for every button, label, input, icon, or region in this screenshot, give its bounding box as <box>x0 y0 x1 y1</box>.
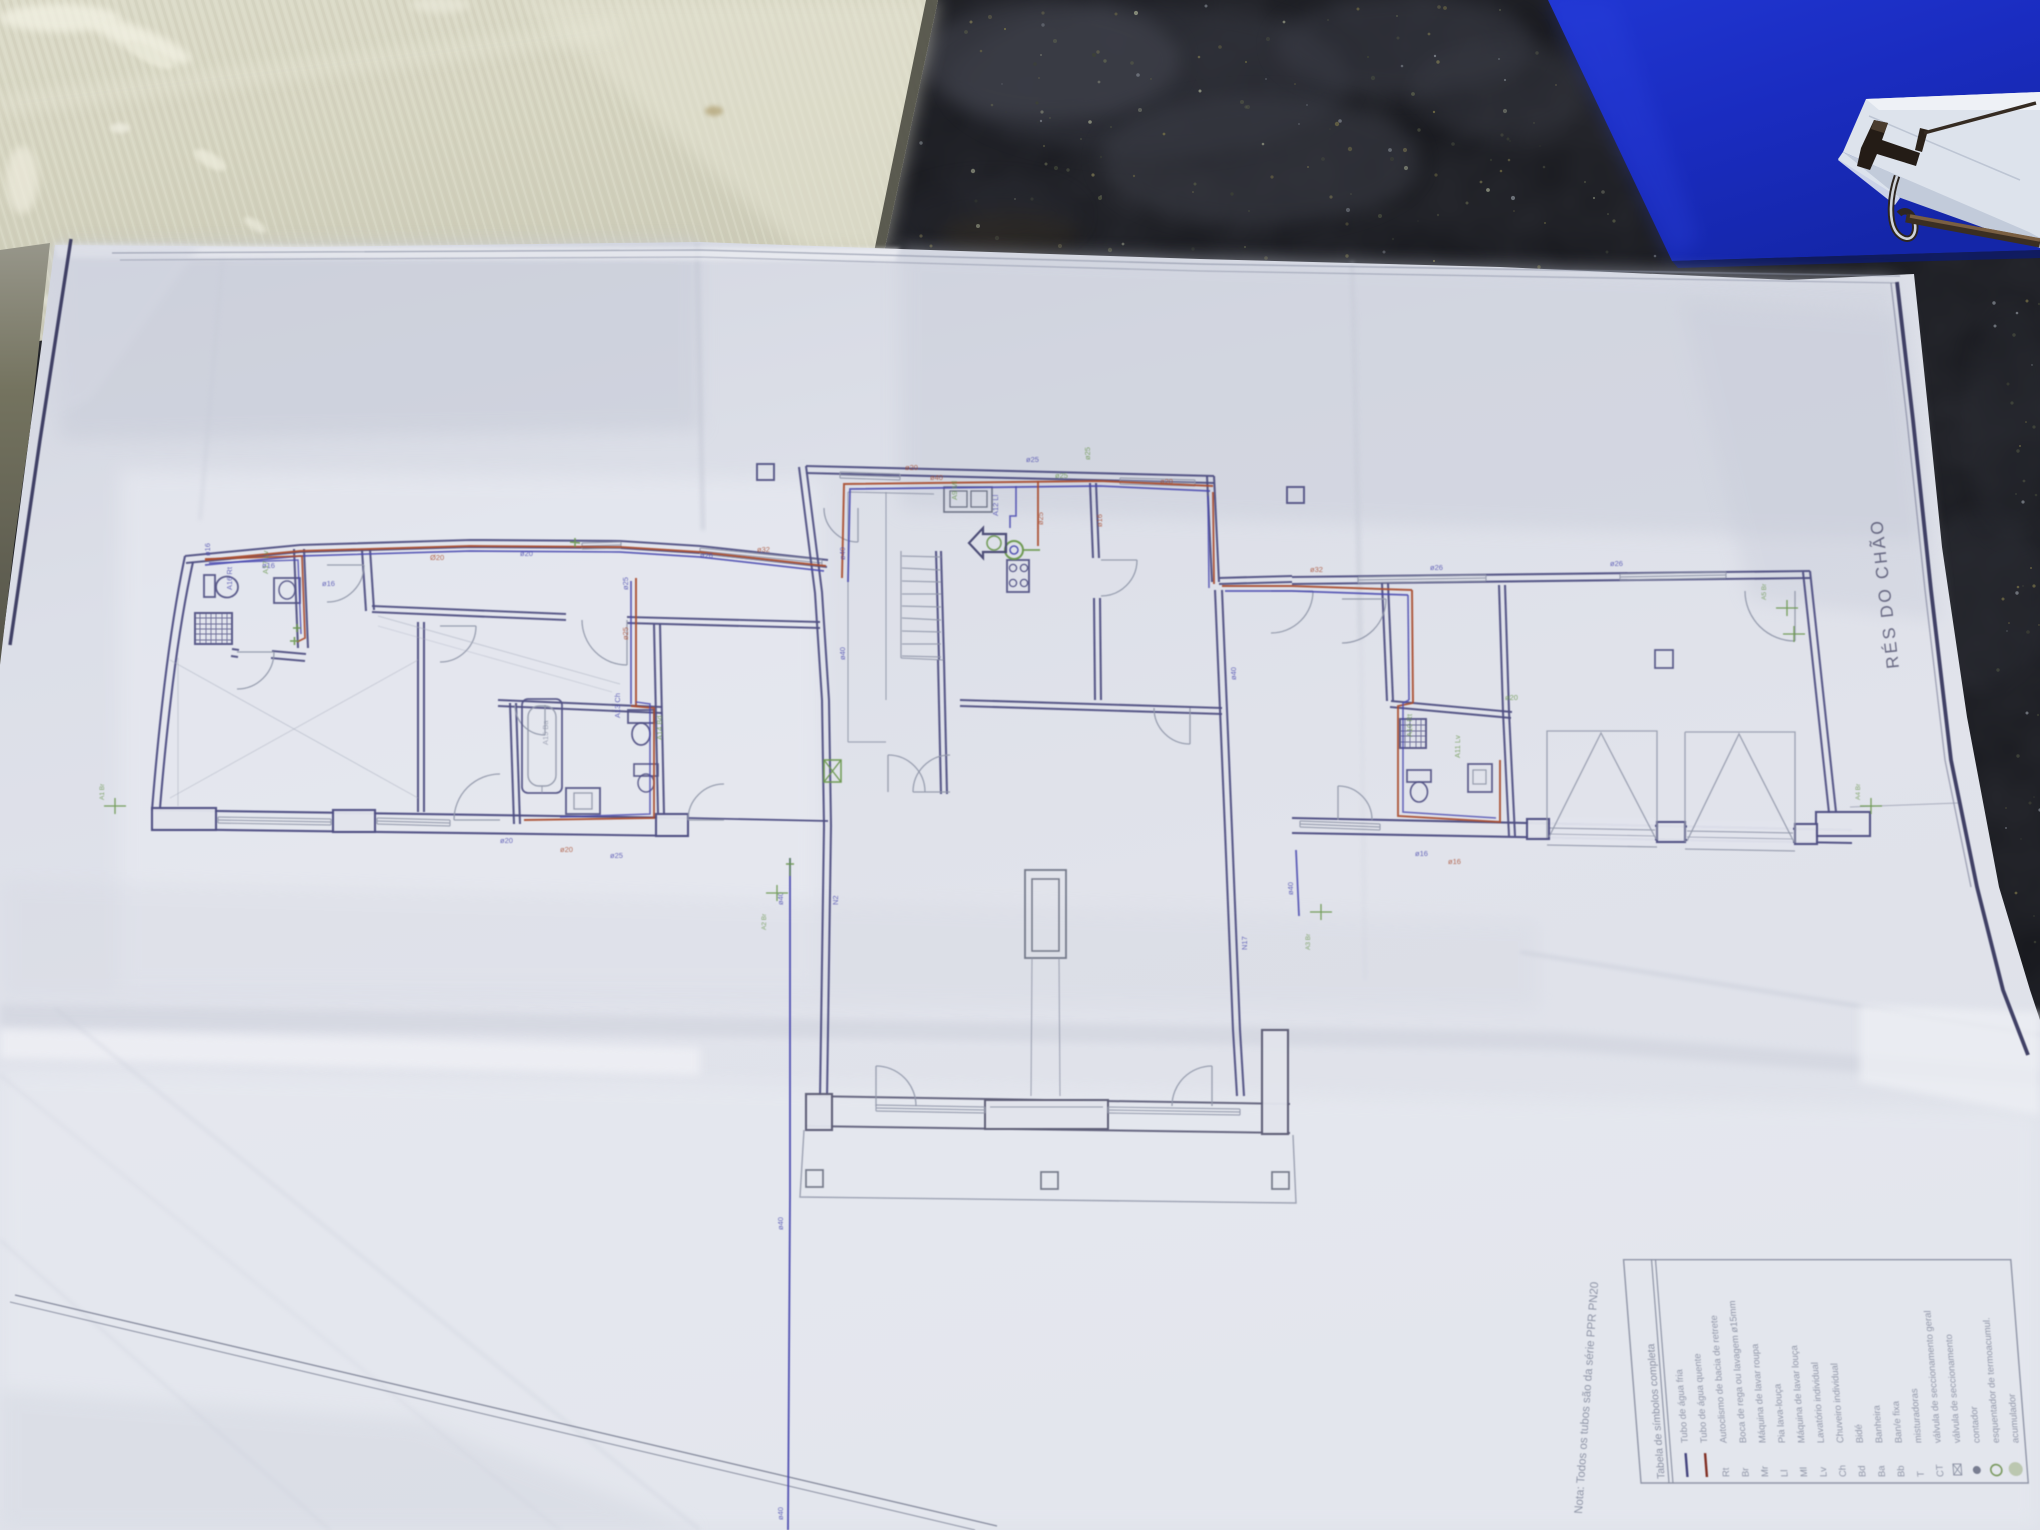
svg-text:ø40: ø40 <box>776 1507 785 1520</box>
svg-text:N2: N2 <box>831 895 840 905</box>
svg-text:ø20: ø20 <box>905 463 918 472</box>
svg-text:ø40: ø40 <box>1286 882 1295 895</box>
svg-text:A1 Br: A1 Br <box>99 783 106 800</box>
svg-text:ø26: ø26 <box>1610 559 1623 568</box>
svg-text:ø25: ø25 <box>1036 512 1045 525</box>
svg-text:ø25: ø25 <box>621 577 630 590</box>
svg-text:A4 Br: A4 Br <box>1855 783 1862 800</box>
svg-text:ø40: ø40 <box>1229 667 1238 680</box>
svg-text:A10 Rt: A10 Rt <box>1405 713 1414 737</box>
svg-text:Ch: Ch <box>1837 1465 1849 1477</box>
svg-text:ø25: ø25 <box>1083 447 1092 460</box>
svg-text:Bd: Bd <box>1857 1465 1869 1477</box>
svg-text:Bidé: Bidé <box>1853 1424 1865 1443</box>
svg-text:Mr: Mr <box>1759 1466 1771 1477</box>
svg-text:A16 Rt: A16 Rt <box>225 566 234 590</box>
svg-text:Bb: Bb <box>1896 1465 1908 1477</box>
svg-text:Ll: Ll <box>1779 1470 1791 1477</box>
svg-text:ø16: ø16 <box>1095 514 1104 527</box>
svg-text:A14 Bd: A14 Bd <box>655 715 664 740</box>
svg-text:ø26: ø26 <box>1430 563 1443 572</box>
svg-text:ø32: ø32 <box>1310 565 1323 574</box>
svg-text:A15 Ba: A15 Ba <box>541 720 550 745</box>
svg-text:A9 Ml: A9 Ml <box>950 480 959 500</box>
svg-text:CT: CT <box>1934 1464 1946 1477</box>
svg-text:A2 Br: A2 Br <box>761 913 768 930</box>
svg-text:Ml: Ml <box>1798 1467 1810 1477</box>
svg-text:ø16: ø16 <box>322 579 335 588</box>
svg-text:A12 Ll: A12 Ll <box>991 494 1000 516</box>
svg-text:ø16: ø16 <box>1415 849 1428 858</box>
svg-text:ø40: ø40 <box>930 473 943 482</box>
svg-text:A17 Lv: A17 Lv <box>261 550 270 574</box>
svg-text:Ba: Ba <box>1876 1465 1888 1477</box>
svg-text:ø20: ø20 <box>1505 693 1518 702</box>
svg-text:ø20: ø20 <box>560 845 573 854</box>
svg-text:A3 Br: A3 Br <box>1305 933 1312 950</box>
svg-text:A13 Ch: A13 Ch <box>613 693 622 718</box>
svg-text:ø16: ø16 <box>1448 857 1461 866</box>
svg-text:ø40: ø40 <box>838 647 847 660</box>
svg-text:ø32: ø32 <box>757 545 770 554</box>
svg-text:ø25: ø25 <box>610 851 623 860</box>
svg-text:N17: N17 <box>1240 936 1249 950</box>
svg-text:ø20: ø20 <box>520 549 533 558</box>
svg-text:ø25: ø25 <box>1026 455 1039 464</box>
svg-text:Ø20: Ø20 <box>430 553 444 562</box>
svg-text:ø40: ø40 <box>776 1217 785 1230</box>
svg-text:A5 Br: A5 Br <box>1761 583 1768 600</box>
svg-text:A11 Lv: A11 Lv <box>1453 735 1462 758</box>
svg-text:ø25: ø25 <box>1055 471 1068 480</box>
svg-text:Br: Br <box>1740 1468 1752 1477</box>
svg-text:ø40: ø40 <box>838 547 847 560</box>
svg-text:Rt: Rt <box>1721 1467 1733 1477</box>
svg-text:ø26: ø26 <box>700 551 713 560</box>
svg-text:T: T <box>1916 1471 1927 1477</box>
svg-text:ø16: ø16 <box>203 543 212 556</box>
svg-text:ø25: ø25 <box>621 627 630 640</box>
svg-text:ø20: ø20 <box>500 836 513 845</box>
svg-text:Lv: Lv <box>1818 1467 1830 1477</box>
svg-text:ø20: ø20 <box>1160 477 1173 486</box>
